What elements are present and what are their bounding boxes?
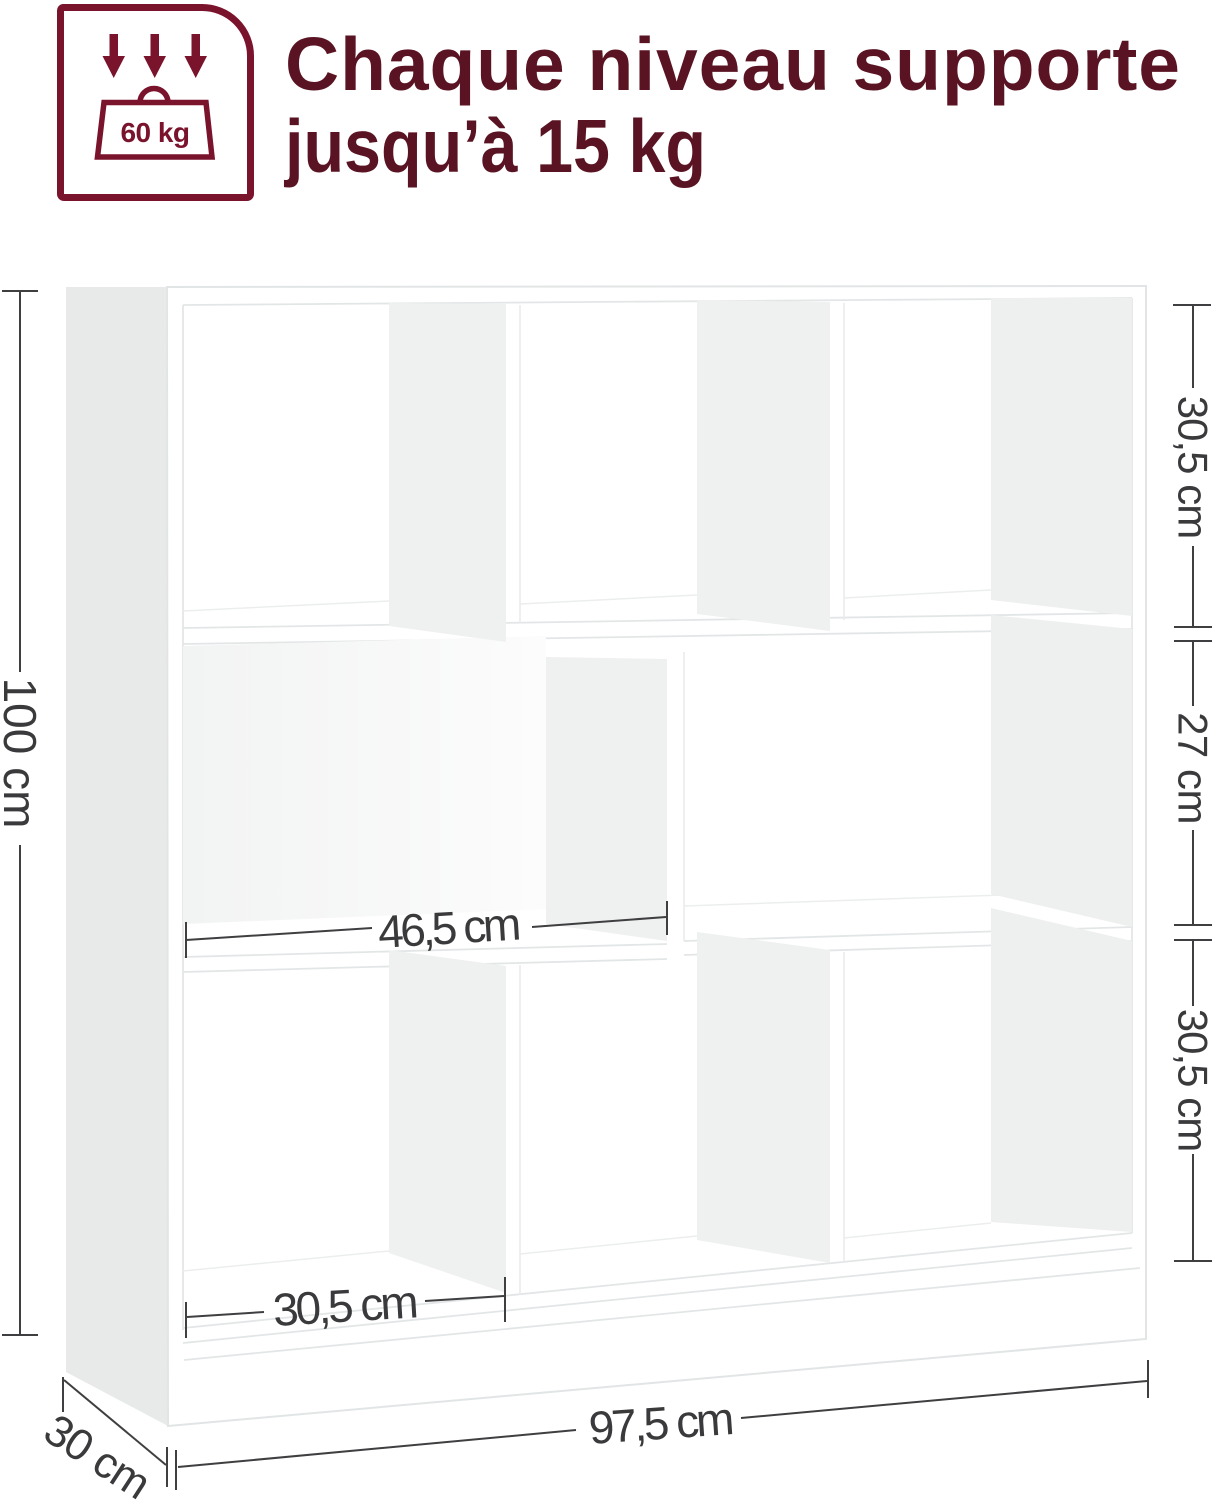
svg-text:30,5 cm: 30,5 cm — [1170, 396, 1213, 538]
svg-text:46,5 cm: 46,5 cm — [376, 897, 520, 958]
svg-text:60 kg: 60 kg — [120, 117, 189, 148]
svg-text:30,5 cm: 30,5 cm — [271, 1275, 417, 1336]
svg-text:30,5 cm: 30,5 cm — [1170, 1009, 1213, 1151]
svg-text:27 cm: 27 cm — [1170, 712, 1213, 824]
svg-text:97,5 cm: 97,5 cm — [587, 1392, 734, 1454]
svg-text:30 cm: 30 cm — [35, 1405, 158, 1500]
svg-text:100 cm: 100 cm — [0, 678, 46, 829]
svg-text:Chaque niveau supporte: Chaque niveau supporte — [285, 22, 1180, 106]
svg-text:jusqu’à 15 kg: jusqu’à 15 kg — [283, 104, 706, 188]
